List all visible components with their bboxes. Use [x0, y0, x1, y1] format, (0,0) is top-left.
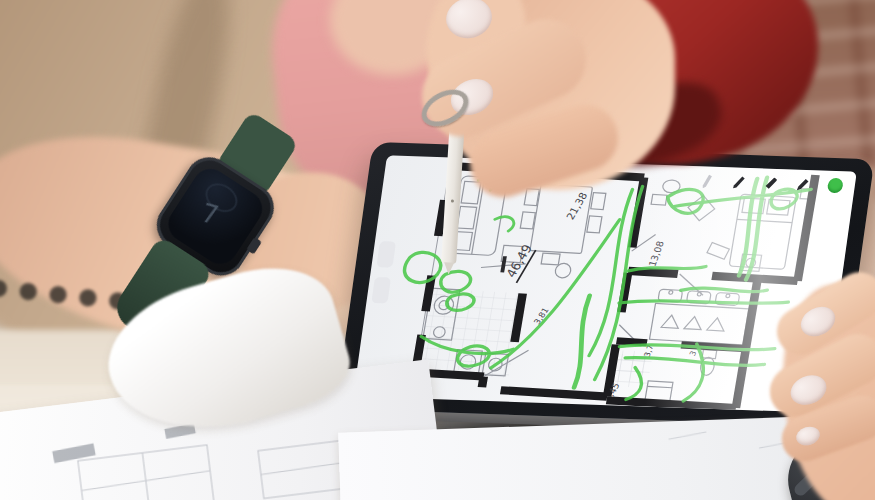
highlighter-icon — [795, 176, 812, 192]
watch-face-glyph: 7 — [198, 197, 222, 230]
dimension-label: 3 — [688, 350, 699, 357]
marker-icon — [763, 175, 780, 191]
dimension-label: 13,08 — [646, 240, 666, 268]
dimension-label: 21,38 — [564, 191, 590, 222]
photo-scene: 7 — [0, 0, 875, 500]
pencil-icon — [699, 172, 716, 188]
pen-icon — [731, 173, 748, 189]
active-color-swatch-green — [827, 177, 844, 192]
watch-crown — [246, 237, 262, 254]
stylus-seam — [451, 200, 454, 203]
